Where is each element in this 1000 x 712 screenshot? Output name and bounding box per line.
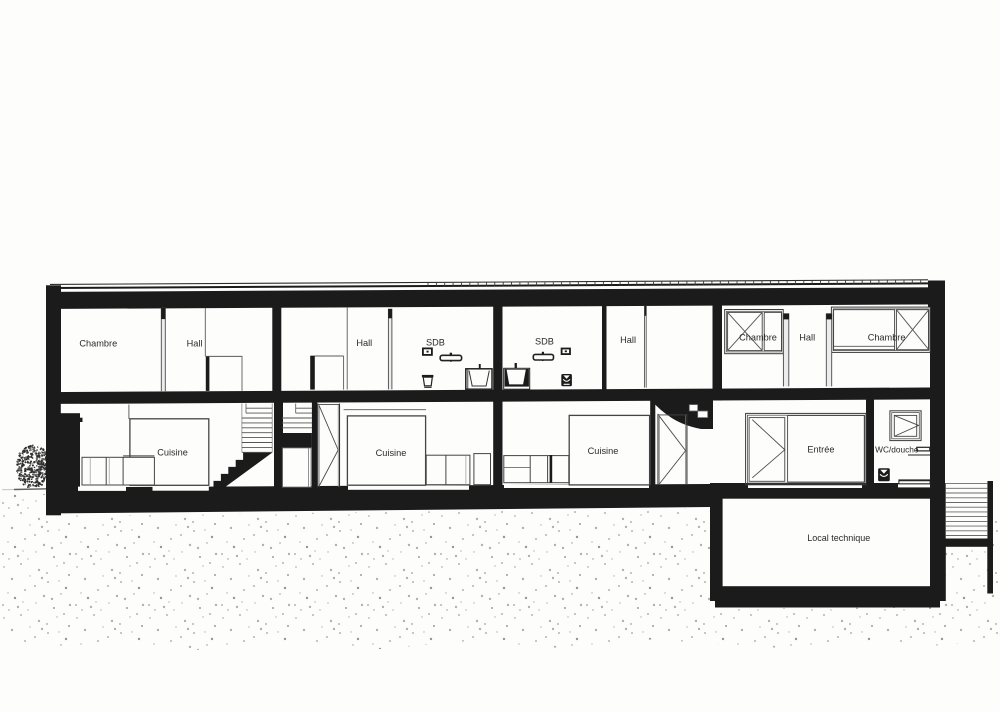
- svg-text:Chambre: Chambre: [79, 338, 117, 348]
- svg-text:SDB: SDB: [426, 337, 445, 347]
- svg-text:Hall: Hall: [620, 335, 636, 345]
- svg-text:Cuisine: Cuisine: [157, 448, 188, 458]
- svg-text:Local technique: Local technique: [807, 533, 870, 543]
- svg-text:Entrée: Entrée: [807, 445, 834, 455]
- svg-text:Hall: Hall: [356, 338, 372, 348]
- svg-text:Chambre: Chambre: [868, 333, 906, 343]
- svg-text:Chambre: Chambre: [739, 333, 777, 343]
- svg-text:Cuisine: Cuisine: [376, 448, 407, 458]
- svg-text:Hall: Hall: [799, 333, 815, 343]
- svg-text:WC/douche: WC/douche: [875, 444, 919, 454]
- svg-text:SDB: SDB: [535, 336, 554, 346]
- svg-text:Hall: Hall: [187, 339, 203, 349]
- svg-text:Cuisine: Cuisine: [588, 446, 619, 456]
